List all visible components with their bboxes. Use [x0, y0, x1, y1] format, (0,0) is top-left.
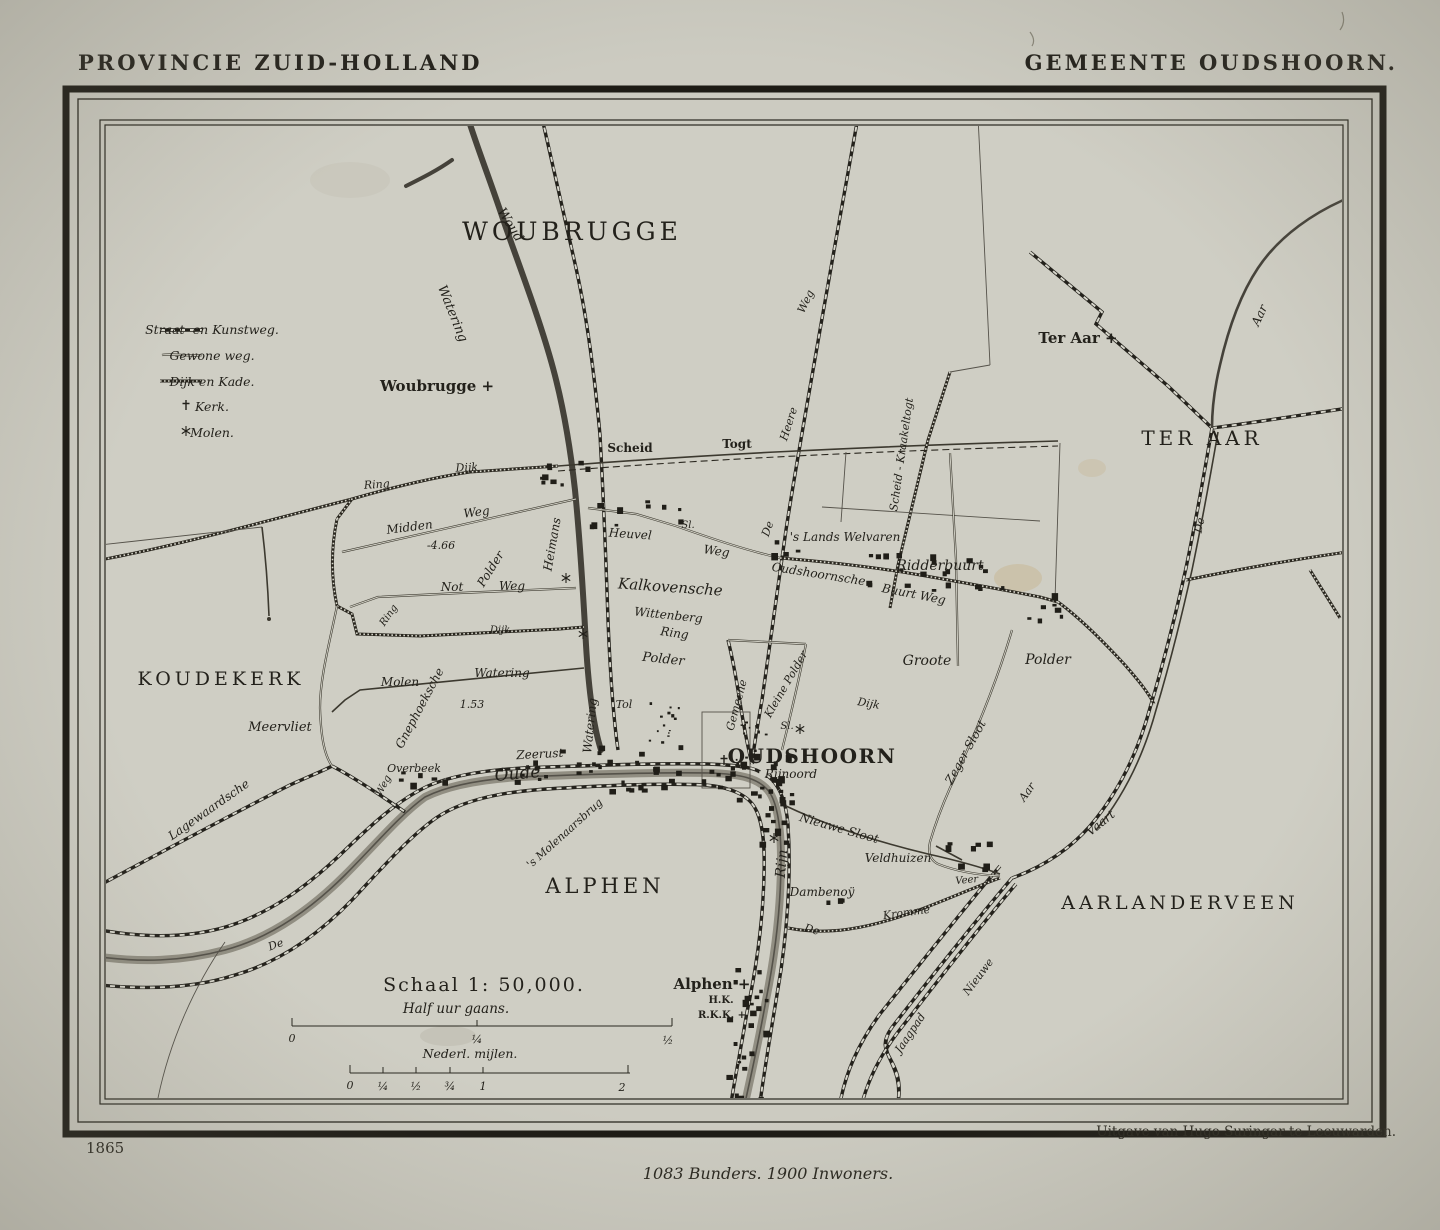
map-label: ALPHEN — [544, 874, 664, 898]
scale-title: Schaal 1: 50,000. — [383, 974, 585, 996]
map-label: Meervliet — [247, 720, 312, 735]
map-label: Woubrugge + — [379, 377, 494, 395]
bar1-tick: ½ — [663, 1034, 674, 1047]
legend-label: Molen. — [189, 425, 234, 440]
map-label: 's Lands Welvaren — [790, 530, 901, 544]
bar2-tick: 2 — [618, 1081, 626, 1094]
map-label: Groote — [903, 653, 952, 669]
map-label: Weg — [499, 579, 525, 593]
bar2-tick: ¾ — [445, 1080, 456, 1093]
map-label: Sl. — [681, 520, 694, 531]
map-label: R.K.K. + — [698, 1010, 746, 1021]
map-label: Dijk — [489, 625, 510, 636]
title-gemeente: GEMEENTE OUDSHOORN. — [1025, 50, 1398, 75]
map-label: AARLANDERVEEN — [1060, 892, 1299, 914]
bar1-tick: ¼ — [472, 1033, 483, 1046]
scale-bar1-label: Half uur gaans. — [402, 1001, 509, 1017]
map-label: Ring — [362, 477, 390, 492]
bar2-tick: 0 — [347, 1079, 354, 1092]
title-province: PROVINCIE ZUID-HOLLAND — [78, 50, 482, 75]
map-label: Zeerust — [515, 746, 564, 763]
bar2-tick: ¼ — [378, 1080, 389, 1093]
map-label: Veldhuizen — [865, 851, 932, 865]
map-label: Ridderbuurt — [895, 558, 984, 574]
map-label: Molen — [380, 675, 419, 689]
map-label: WOUBRUGGE — [462, 217, 682, 246]
map-label: -4.66 — [427, 539, 455, 552]
map-label: Dijk — [454, 460, 478, 474]
map-label: Togt — [722, 437, 752, 451]
map-label: Tol — [616, 698, 633, 711]
map-label: Veer — [955, 874, 980, 887]
map-label: OUDSHOORN — [728, 744, 897, 768]
map-label: Alphen + — [673, 975, 751, 993]
map-label: Not — [440, 580, 464, 594]
map-label: H.K. — [708, 995, 733, 1006]
map-label: Overbeek — [387, 762, 441, 775]
scale-bar2-label: Nederl. mijlen. — [422, 1046, 518, 1061]
map-paper — [106, 126, 1342, 1098]
map-label: Polder — [1024, 652, 1072, 668]
legend-label: Kerk. — [194, 399, 229, 414]
map-year: 1865 — [86, 1139, 124, 1157]
map-label: 1.53 — [460, 698, 485, 711]
map-label: Dambenoÿ — [789, 885, 855, 899]
map-label: Sl. — [780, 721, 793, 732]
map-label: Oude — [494, 762, 541, 786]
map-label: Ter Aar + — [1038, 329, 1117, 347]
map-label: TER AAR — [1141, 426, 1262, 450]
map-canvas: PROVINCIE ZUID-HOLLAND GEMEENTE OUDSHOOR… — [0, 0, 1440, 1230]
statistics-line: 1083 Bunders. 1900 Inwoners. — [643, 1164, 893, 1183]
map-label: Scheid — [607, 441, 653, 455]
stub-dot — [267, 617, 271, 621]
bar2-tick: 1 — [480, 1080, 487, 1093]
map-label: KOUDEKERK — [138, 668, 305, 690]
bar2-tick: ½ — [411, 1080, 422, 1093]
map-label: Rijn — [773, 849, 792, 880]
bar1-tick: 0 — [289, 1032, 296, 1045]
legend-label: Dijk en Kade. — [168, 374, 254, 389]
map-label: Watering — [474, 666, 530, 680]
map-label: Rijnoord — [764, 767, 818, 781]
legend-label: Straat- en Kunstweg. — [145, 322, 279, 337]
legend-label: Gewone weg. — [169, 348, 254, 363]
publisher-imprint: Uitgave van Hugo Suringar te Leeuwarden. — [1096, 1124, 1396, 1140]
